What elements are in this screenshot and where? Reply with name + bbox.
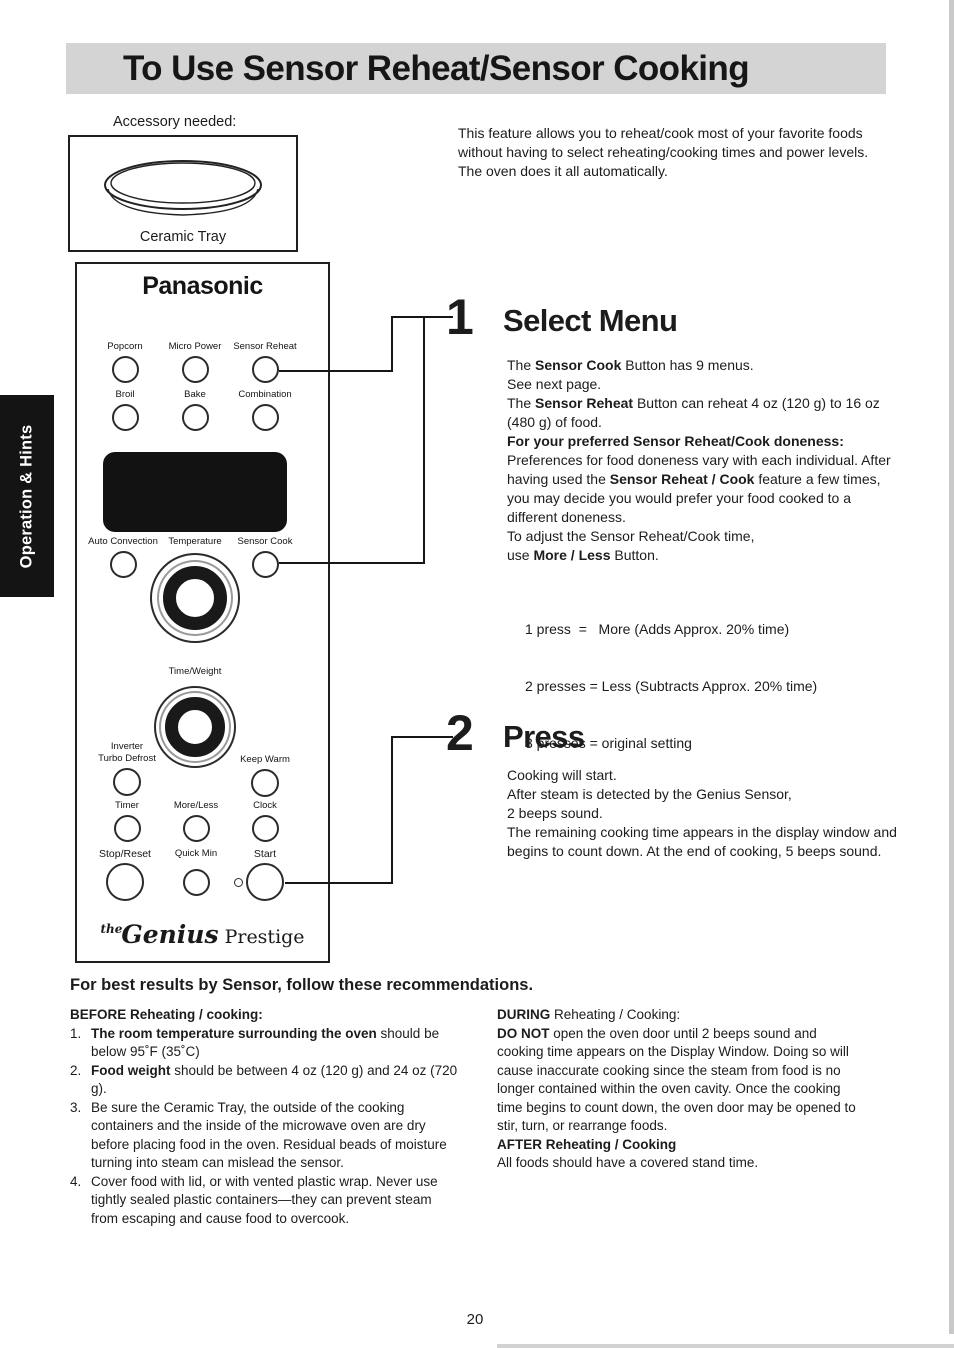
temperature-label: Temperature	[168, 536, 221, 548]
broil-circle	[112, 404, 139, 431]
stop-reset-label: Stop/Reset	[99, 848, 151, 860]
step-1-number: 1	[446, 292, 473, 342]
clock-circle	[252, 815, 279, 842]
paragraph: For your preferred Sensor Reheat/Cook do…	[507, 432, 897, 451]
paragraph: The Sensor Reheat Button can reheat 4 oz…	[507, 394, 897, 432]
scan-edge-artifact-right	[949, 0, 954, 1334]
callout-line-step2-horizontal	[391, 736, 453, 738]
step-2-number: 2	[446, 708, 473, 758]
recommendations-during-column: DURING Reheating / Cooking: DO NOT open …	[497, 1006, 859, 1173]
accessory-needed-label: Accessory needed:	[113, 114, 236, 130]
paragraph: To adjust the Sensor Reheat/Cook time,	[507, 527, 897, 546]
inverter-label-line2: Turbo Defrost	[98, 753, 156, 765]
quick-min-label: Quick Min	[175, 848, 217, 860]
list-item-text: Be sure the Ceramic Tray, the outside of…	[91, 1099, 462, 1173]
combination-button[interactable]: Combination	[223, 389, 307, 431]
auto-convection-label: Auto Convection	[88, 536, 158, 548]
press-table-row: 2 presses = Less (Subtracts Approx. 20% …	[525, 677, 897, 696]
manual-page: To Use Sensor Reheat/Sensor Cooking Acce…	[0, 0, 954, 1348]
time-weight-label: Time/Weight	[169, 666, 222, 678]
page-title: To Use Sensor Reheat/Sensor Cooking	[123, 49, 749, 89]
after-heading: AFTER Reheating / Cooking	[497, 1136, 859, 1155]
start-button[interactable]: Start	[223, 848, 307, 901]
timer-circle	[114, 815, 141, 842]
list-item: 3. Be sure the Ceramic Tray, the outside…	[70, 1099, 462, 1173]
callout-line-step1-horizontal	[391, 316, 453, 318]
list-item-text: The room temperature surrounding the ove…	[91, 1025, 462, 1062]
ceramic-tray-label: Ceramic Tray	[70, 229, 296, 245]
paragraph: See next page.	[507, 375, 897, 394]
page-number: 20	[430, 1311, 520, 1328]
step-2-body: Cooking will start. After steam is detec…	[507, 766, 897, 861]
inverter-turbo-defrost-circle	[113, 768, 141, 796]
recommendations-before-column: BEFORE Reheating / cooking: 1. The room …	[70, 1006, 462, 1228]
recommendations-heading: For best results by Sensor, follow these…	[70, 976, 533, 995]
list-item-number: 1.	[70, 1025, 91, 1062]
callout-line-step2-vertical	[391, 736, 393, 884]
logo-genius: Genius	[121, 920, 218, 949]
logo-the: the	[100, 922, 122, 936]
more-less-label: More/Less	[174, 800, 218, 812]
keep-warm-button[interactable]: Keep Warm	[223, 754, 307, 797]
sensor-cook-label: Sensor Cook	[238, 536, 293, 548]
control-panel: Panasonic Popcorn Micro Power Sensor Reh…	[75, 262, 330, 963]
section-tab-label: Operation & Hints	[18, 424, 37, 568]
callout-line-sensor-cook-vertical	[423, 316, 425, 564]
sensor-cook-button[interactable]: Sensor Cook	[223, 536, 307, 578]
temperature-knob-ring	[163, 566, 227, 630]
sensor-reheat-button[interactable]: Sensor Reheat	[223, 341, 307, 383]
callout-line-sensor-cook	[279, 562, 425, 564]
start-label: Start	[254, 848, 276, 860]
keep-warm-label: Keep Warm	[240, 754, 290, 766]
paragraph: The remaining cooking time appears in th…	[507, 823, 897, 861]
more-less-press-table: 1 press = More (Adds Approx. 20% time) 2…	[507, 582, 897, 791]
inverter-turbo-defrost-button[interactable]: Inverter Turbo Defrost	[85, 741, 169, 796]
micro-power-label: Micro Power	[169, 341, 222, 353]
ceramic-tray-illustration	[70, 147, 296, 227]
callout-line-sensor-reheat	[279, 370, 393, 372]
brand-logo: Panasonic	[77, 272, 328, 301]
combination-label: Combination	[238, 389, 291, 401]
time-weight-label-block: Time/Weight	[153, 666, 237, 678]
keep-warm-circle	[251, 769, 279, 797]
paragraph: use More / Less Button.	[507, 546, 897, 565]
clock-label: Clock	[253, 800, 277, 812]
more-less-circle	[183, 815, 210, 842]
list-item-number: 3.	[70, 1099, 91, 1173]
callout-line-step1-vertical	[391, 316, 393, 372]
paragraph: The Sensor Cook Button has 9 menus.	[507, 356, 897, 375]
list-item-number: 2.	[70, 1062, 91, 1099]
popcorn-label: Popcorn	[107, 341, 142, 353]
timer-label: Timer	[115, 800, 139, 812]
combination-circle	[252, 404, 279, 431]
paragraph: Preferences for food doneness vary with …	[507, 451, 897, 527]
popcorn-circle	[112, 356, 139, 383]
micro-power-circle	[182, 356, 209, 383]
paragraph: After steam is detected by the Genius Se…	[507, 785, 897, 804]
stop-reset-circle	[106, 863, 144, 901]
bake-label: Bake	[184, 389, 206, 401]
press-table-row: 1 press = More (Adds Approx. 20% time)	[525, 620, 897, 639]
logo-prestige: Prestige	[219, 926, 305, 948]
time-weight-knob-ring	[165, 697, 225, 757]
before-heading: BEFORE Reheating / cooking:	[70, 1006, 462, 1025]
accessory-box: Ceramic Tray	[68, 135, 298, 252]
sensor-reheat-label: Sensor Reheat	[233, 341, 296, 353]
after-text: All foods should have a covered stand ti…	[497, 1154, 859, 1173]
sensor-cook-circle	[252, 551, 279, 578]
step-1-heading: Select Menu	[503, 303, 677, 339]
clock-button[interactable]: Clock	[223, 800, 307, 842]
list-item: 2. Food weight should be between 4 oz (1…	[70, 1062, 462, 1099]
during-text: DO NOT open the oven door until 2 beeps …	[497, 1025, 859, 1136]
auto-convection-circle	[110, 551, 137, 578]
bake-circle	[182, 404, 209, 431]
section-tab-operation-hints: Operation & Hints	[0, 395, 54, 597]
list-item-text: Cover food with lid, or with vented plas…	[91, 1173, 462, 1229]
paragraph: Cooking will start.	[507, 766, 897, 785]
during-heading: DURING Reheating / Cooking:	[497, 1006, 859, 1025]
step-2-heading: Press	[503, 719, 584, 755]
list-item-number: 4.	[70, 1173, 91, 1229]
display-window	[103, 452, 287, 532]
page-title-bar: To Use Sensor Reheat/Sensor Cooking	[66, 43, 886, 94]
inverter-label-line1: Inverter	[111, 741, 143, 753]
intro-paragraph: This feature allows you to reheat/cook m…	[458, 124, 883, 181]
temperature-knob[interactable]	[150, 553, 240, 643]
quick-min-circle	[183, 869, 210, 896]
list-item-text: Food weight should be between 4 oz (120 …	[91, 1062, 462, 1099]
callout-line-start	[285, 882, 393, 884]
list-item: 4. Cover food with lid, or with vented p…	[70, 1173, 462, 1229]
broil-label: Broil	[115, 389, 134, 401]
start-indicator-dot	[234, 878, 243, 887]
genius-prestige-logo: theGenius Prestige	[77, 920, 328, 949]
paragraph: 2 beeps sound.	[507, 804, 897, 823]
list-item: 1. The room temperature surrounding the …	[70, 1025, 462, 1062]
sensor-reheat-circle	[252, 356, 279, 383]
scan-edge-artifact-bottom	[497, 1344, 954, 1348]
start-circle	[246, 863, 284, 901]
